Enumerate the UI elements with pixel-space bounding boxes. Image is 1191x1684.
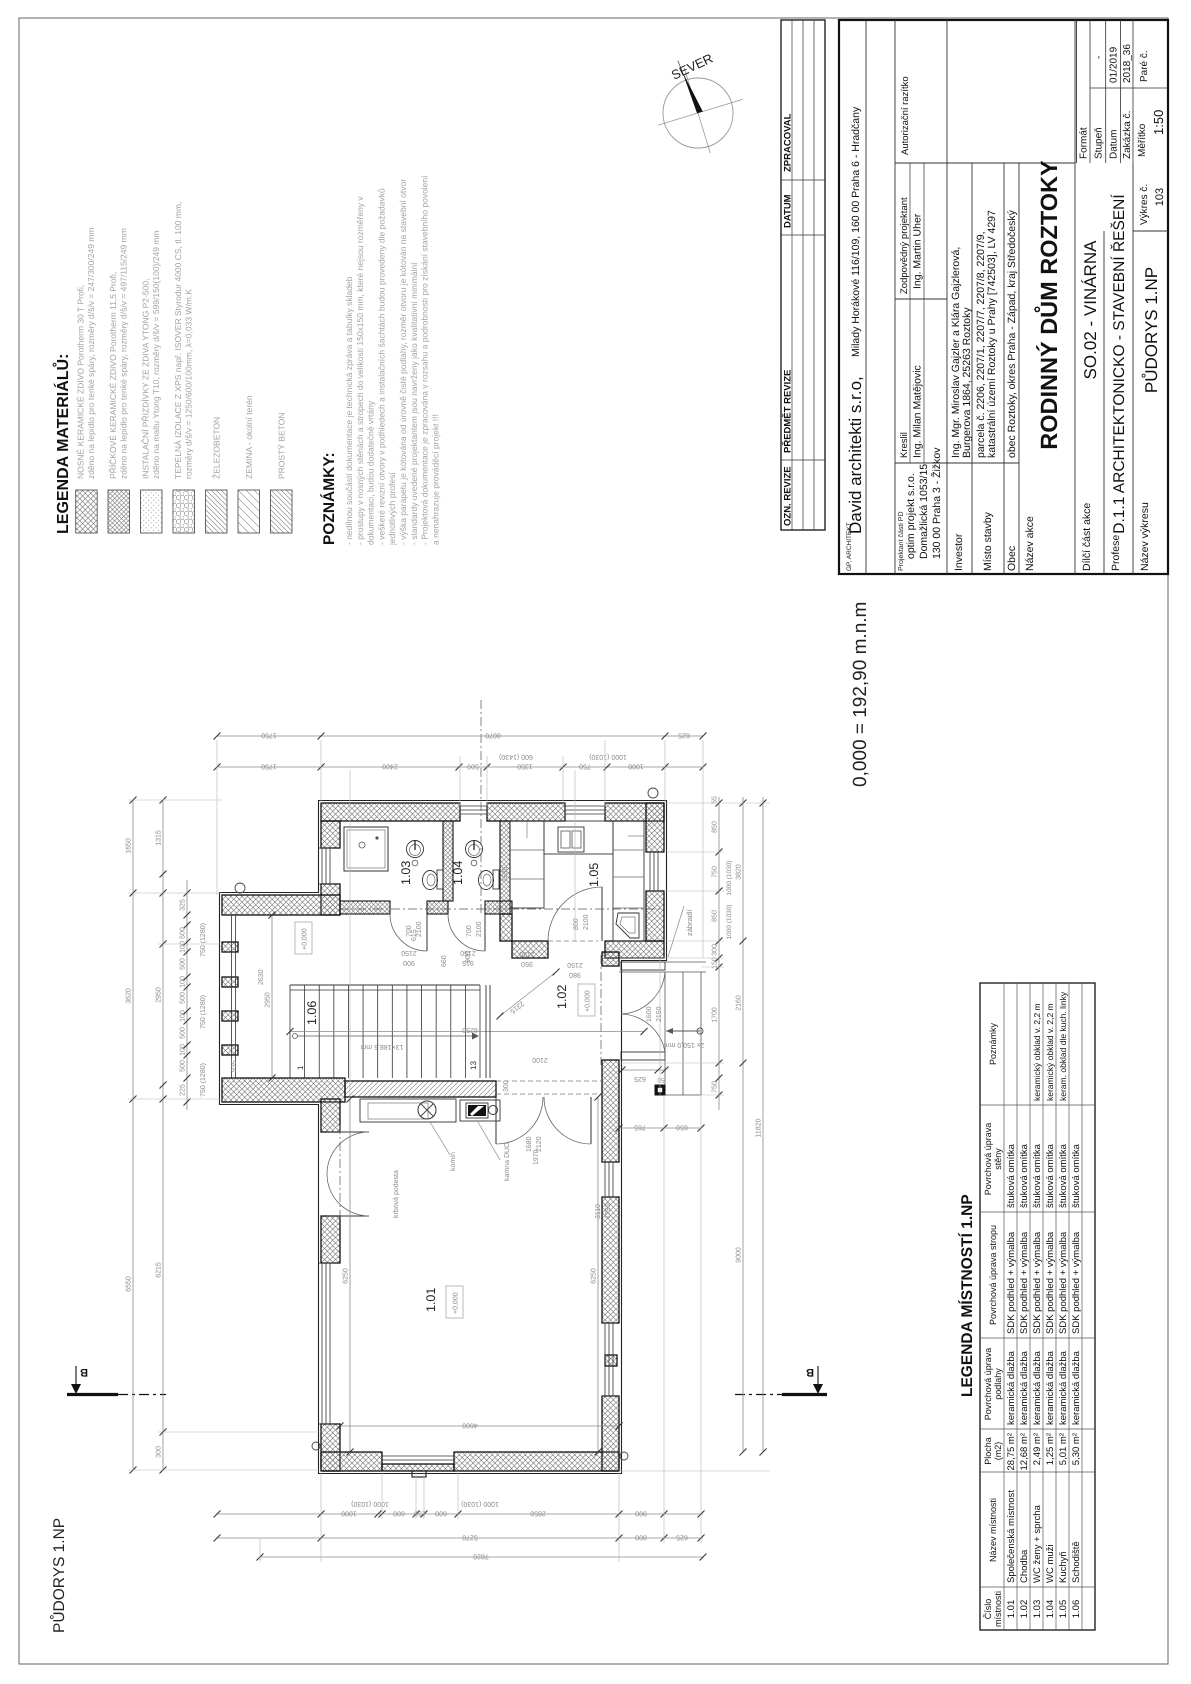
svg-text:28,75 m²: 28,75 m² [1006, 1433, 1017, 1471]
svg-text:Měřítko: Měřítko [1137, 123, 1148, 157]
svg-text:750 (1280): 750 (1280) [199, 923, 207, 957]
svg-text:štuková omítka: štuková omítka [1006, 1143, 1017, 1208]
svg-text:1750: 1750 [605, 1203, 612, 1219]
svg-text:OZN. REVIZE: OZN. REVIZE [783, 466, 794, 526]
svg-text:+0,000: +0,000 [585, 990, 592, 1012]
svg-text:+0,000: +0,000 [453, 1292, 460, 1314]
svg-text:1.02: 1.02 [555, 985, 569, 1009]
svg-text:2630: 2630 [258, 969, 265, 985]
svg-text:300: 300 [712, 944, 719, 956]
svg-text:Číslo: Číslo [983, 1599, 993, 1620]
svg-text:WC ženy + sprcha: WC ženy + sprcha [1032, 1504, 1043, 1583]
svg-text:2120: 2120 [536, 1136, 543, 1152]
svg-text:750: 750 [712, 1081, 719, 1093]
svg-text:Název akce: Název akce [1024, 516, 1036, 571]
svg-text:2018_36: 2018_36 [1122, 44, 1133, 83]
svg-text:5,30 m²: 5,30 m² [1071, 1433, 1082, 1465]
svg-text:ZEMINA - okolní terén: ZEMINA - okolní terén [244, 395, 254, 479]
svg-text:500: 500 [467, 763, 479, 770]
svg-text:2950: 2950 [265, 992, 272, 1008]
svg-text:100: 100 [180, 1044, 187, 1056]
svg-text:5270: 5270 [462, 1534, 478, 1541]
svg-text:Místo stavby: Místo stavby [982, 511, 994, 571]
svg-text:Investor: Investor [953, 533, 965, 571]
svg-text:Formát: Formát [1079, 127, 1090, 159]
svg-text:zděno na maltu Ytong T10, rozm: zděno na maltu Ytong T10, rozměry d/š/v … [151, 231, 161, 479]
svg-text:- nedílnou součástí dokumentac: - nedílnou součástí dokumentace je techn… [344, 276, 354, 545]
svg-text:POZNÁMKY:: POZNÁMKY: [320, 452, 338, 545]
svg-text:štuková omítka: štuková omítka [1019, 1143, 1030, 1208]
svg-text:keram. obklad dle kuch. linky: keram. obklad dle kuch. linky [1058, 991, 1068, 1101]
svg-text:-: - [1094, 56, 1105, 59]
svg-text:SDK podhled + výmalba: SDK podhled + výmalba [1071, 1231, 1082, 1334]
svg-text:keramická dlažba: keramická dlažba [1006, 1350, 1017, 1425]
svg-text:980: 980 [569, 971, 581, 978]
svg-text:Domažlická 1053/15: Domažlická 1053/15 [918, 464, 930, 559]
svg-text:Ing. Martin Uher: Ing. Martin Uher [912, 213, 924, 289]
svg-text:500: 500 [180, 927, 187, 939]
svg-text:1650: 1650 [126, 838, 133, 854]
svg-text:2100: 2100 [532, 1056, 548, 1063]
svg-text:Název místnosti: Název místnosti [988, 1498, 998, 1562]
svg-text:ZPRACOVAL: ZPRACOVAL [783, 113, 794, 172]
svg-text:TEPELNÁ IZOLACE Z XPS např. IS: TEPELNÁ IZOLACE Z XPS např. ISOVER Styro… [173, 202, 183, 479]
svg-text:kamna DUO: kamna DUO [503, 1142, 511, 1181]
svg-text:1000 (1030): 1000 (1030) [461, 1500, 499, 1508]
svg-text:Povrchová úprava stropu: Povrchová úprava stropu [988, 1225, 998, 1325]
svg-text:800: 800 [573, 918, 580, 930]
svg-text:zábradlí: zábradlí [685, 908, 694, 936]
svg-text:2850: 2850 [530, 1510, 546, 1517]
svg-text:PŮDORYS 1.NP: PŮDORYS 1.NP [1141, 267, 1161, 393]
svg-text:Projektant části PD: Projektant části PD [897, 511, 905, 571]
svg-text:1350: 1350 [517, 763, 533, 770]
svg-text:915: 915 [462, 959, 474, 966]
svg-text:SDK podhled + výmalba: SDK podhled + výmalba [1019, 1231, 1030, 1334]
svg-text:NOSNÉ KERAMICKÉ ZDIVO Porother: NOSNÉ KERAMICKÉ ZDIVO Porotherm 30 T Pro… [76, 285, 86, 479]
svg-text:SDK podhled + výmalba: SDK podhled + výmalba [1045, 1231, 1056, 1334]
svg-text:podlahy: podlahy [993, 1368, 1003, 1400]
svg-text:950: 950 [521, 960, 533, 967]
svg-text:1315: 1315 [156, 830, 163, 846]
svg-text:Schodiště: Schodiště [1071, 1541, 1082, 1583]
svg-text:13×188,5 mm: 13×188,5 mm [360, 1043, 403, 1050]
svg-text:5,01 m²: 5,01 m² [1058, 1433, 1069, 1465]
svg-text:- prostupy v nosných stěnách a: - prostupy v nosných stěnách a stropech … [355, 196, 365, 545]
svg-text:1600: 1600 [646, 1006, 653, 1022]
svg-text:Paré č.: Paré č. [1139, 50, 1150, 82]
svg-text:PŮDORYS 1.NP: PŮDORYS 1.NP [49, 1518, 68, 1633]
svg-text:625: 625 [676, 1534, 688, 1541]
svg-text:1.01: 1.01 [424, 1288, 438, 1312]
svg-text:optim projekt s.r.o.: optim projekt s.r.o. [905, 473, 917, 559]
svg-text:100: 100 [180, 976, 187, 988]
svg-text:místnosti: místnosti [993, 1591, 1003, 1627]
svg-text:katastrální území Roztoky u Pr: katastrální území Roztoky u Prahy [74250… [986, 210, 998, 458]
svg-text:130 00 Praha 3 - Žižkov: 130 00 Praha 3 - Žižkov [930, 447, 943, 559]
svg-text:PŘÍČKOVÉ KERAMICKÉ ZDIVO Porot: PŘÍČKOVÉ KERAMICKÉ ZDIVO Porotherm 11,5 … [108, 272, 118, 479]
svg-text:Dílčí část akce: Dílčí část akce [1081, 503, 1093, 571]
svg-text:1000 (1030): 1000 (1030) [726, 904, 733, 939]
svg-text:2160: 2160 [736, 995, 743, 1011]
svg-text:- Projektová dokumentace je zp: - Projektová dokumentace je zpracována v… [420, 175, 430, 545]
svg-text:11820: 11820 [756, 1118, 763, 1137]
svg-text:3110: 3110 [595, 1204, 602, 1219]
svg-text:600 (1430): 600 (1430) [499, 753, 533, 761]
svg-text:- veškeré revizní otvory v pod: - veškeré revizní otvory v podhledech a … [376, 188, 386, 545]
svg-text:ŽELEZOBETON: ŽELEZOBETON [212, 417, 222, 479]
svg-text:2x 150,0 mm: 2x 150,0 mm [664, 1041, 705, 1048]
svg-text:1.03: 1.03 [1032, 1600, 1043, 1619]
svg-text:Kreslil: Kreslil [899, 432, 910, 458]
svg-text:6250: 6250 [462, 1026, 478, 1033]
svg-text:225: 225 [180, 1084, 187, 1096]
svg-text:obec Roztoky, okres Praha - Zá: obec Roztoky, okres Praha - Západ, kraj … [1006, 209, 1018, 458]
svg-text:1680: 1680 [526, 1136, 533, 1152]
svg-text:700: 700 [466, 925, 473, 937]
svg-text:1535: 1535 [502, 866, 509, 882]
svg-text:2150: 2150 [401, 949, 417, 956]
svg-text:Poznámky: Poznámky [988, 1022, 998, 1065]
svg-text:2150: 2150 [519, 950, 535, 957]
svg-text:1.04: 1.04 [1045, 1600, 1056, 1619]
svg-text:600: 600 [435, 1510, 447, 1517]
svg-text:Stupeň: Stupeň [1094, 127, 1105, 159]
svg-text:900: 900 [635, 1510, 647, 1517]
svg-text:1:50: 1:50 [1151, 110, 1166, 135]
svg-text:300: 300 [156, 1446, 163, 1458]
svg-text:600: 600 [393, 1510, 405, 1517]
svg-text:LEGENDA MATERIÁLŮ:: LEGENDA MATERIÁLŮ: [52, 354, 72, 534]
svg-text:12,68 m²: 12,68 m² [1019, 1433, 1030, 1471]
svg-text:+0,000: +0,000 [302, 928, 309, 950]
svg-text:800: 800 [635, 1534, 647, 1541]
svg-text:Výkres č.: Výkres č. [1139, 184, 1150, 225]
svg-text:500: 500 [180, 1060, 187, 1072]
svg-text:4600: 4600 [462, 1422, 478, 1429]
svg-text:2100: 2100 [416, 921, 423, 937]
svg-text:9000: 9000 [736, 1247, 743, 1263]
svg-text:(m2): (m2) [993, 1442, 1003, 1461]
svg-text:6250: 6250 [591, 1268, 598, 1284]
svg-text:1.06: 1.06 [1071, 1600, 1082, 1619]
svg-text:INSTALAČNÍ PŘIZDÍVKY ZE ZDIVA: INSTALAČNÍ PŘIZDÍVKY ZE ZDIVA YTONG P2-5… [141, 279, 151, 479]
svg-text:PŘEDMĚT REVIZE: PŘEDMĚT REVIZE [782, 370, 794, 453]
svg-text:6550: 6550 [126, 1276, 133, 1292]
svg-text:PROSTÝ BETON: PROSTÝ BETON [277, 413, 287, 479]
svg-text:0,000 = 192,90 m.n.m: 0,000 = 192,90 m.n.m [850, 602, 871, 787]
svg-text:Chodba: Chodba [1019, 1549, 1030, 1583]
svg-text:Milady Horákové 116/109, 160 0: Milady Horákové 116/109, 160 00 Praha 6 … [850, 106, 862, 357]
svg-text:keramický obklad v. 2,2 m: keramický obklad v. 2,2 m [1045, 1003, 1055, 1101]
svg-text:2150: 2150 [567, 961, 583, 968]
svg-text:500: 500 [180, 992, 187, 1004]
svg-text:2150: 2150 [460, 949, 476, 956]
svg-text:keramická dlažba: keramická dlažba [1032, 1350, 1043, 1425]
svg-text:2400: 2400 [382, 763, 398, 770]
svg-text:B: B [806, 1366, 814, 1378]
svg-text:500: 500 [180, 958, 187, 970]
svg-text:3620: 3620 [126, 988, 133, 1004]
svg-text:103: 103 [1154, 188, 1166, 206]
svg-text:750: 750 [579, 763, 591, 770]
svg-text:1000: 1000 [628, 763, 644, 770]
svg-text:900: 900 [403, 959, 415, 966]
svg-text:dokumentaci, budou dodatečně v: dokumentaci, budou dodatečně vrtány [366, 400, 376, 545]
svg-text:David architekti s.r.o,: David architekti s.r.o, [846, 376, 865, 534]
svg-text:Burgerova 1864, 25263 Roztoky: Burgerova 1864, 25263 Roztoky [961, 307, 973, 458]
svg-text:2950: 2950 [156, 987, 163, 1003]
svg-text:1000 (1030): 1000 (1030) [726, 860, 733, 895]
svg-text:keramická dlažba: keramická dlažba [1045, 1350, 1056, 1425]
svg-text:1000: 1000 [341, 1510, 357, 1517]
svg-text:1000 (1030): 1000 (1030) [589, 753, 627, 761]
svg-text:1750: 1750 [261, 732, 277, 739]
svg-text:Zakázka č.: Zakázka č. [1122, 111, 1133, 159]
svg-text:750: 750 [712, 866, 719, 878]
svg-text:100: 100 [180, 1010, 187, 1022]
svg-text:2150: 2150 [656, 1006, 663, 1022]
svg-text:6250: 6250 [343, 1268, 350, 1284]
svg-text:Plocha: Plocha [983, 1437, 993, 1465]
svg-text:625: 625 [678, 732, 690, 739]
svg-text:keramický obklad v. 2,2 m: keramický obklad v. 2,2 m [1032, 1003, 1042, 1101]
svg-text:a nenahrazuje prováděcí projek: a nenahrazuje prováděcí projekt !!! [430, 414, 440, 545]
svg-text:zděno na lepidlo pro tenké spá: zděno na lepidlo pro tenké spáry, rozměr… [119, 228, 129, 479]
svg-text:LEGENDA MÍSTNOSTÍ 1.NP: LEGENDA MÍSTNOSTÍ 1.NP [958, 1194, 976, 1397]
svg-text:keramická dlažba: keramická dlažba [1071, 1350, 1082, 1425]
svg-text:325: 325 [180, 899, 187, 911]
svg-text:300: 300 [503, 1080, 510, 1092]
svg-text:Povrchová úprava: Povrchová úprava [983, 1123, 993, 1196]
svg-text:Profese: Profese [1110, 535, 1122, 571]
svg-text:1700: 1700 [712, 1007, 719, 1023]
svg-text:D.1.1 ARCHITEKTONICKO - STAVEB: D.1.1 ARCHITEKTONICKO - STAVEBNÍ ŘEŠENÍ [1110, 194, 1128, 534]
svg-text:1.01: 1.01 [1006, 1600, 1017, 1619]
svg-text:6215: 6215 [156, 1262, 163, 1278]
svg-text:keramická dlažba: keramická dlažba [1019, 1350, 1030, 1425]
svg-text:jednotlivých profesí: jednotlivých profesí [387, 472, 397, 546]
svg-text:rozměry d/š/v = 1250/600/100mm: rozměry d/š/v = 1250/600/100mm, λ=0,033 … [184, 289, 194, 479]
svg-text:1.06: 1.06 [305, 1001, 319, 1025]
svg-text:keramická dlažba: keramická dlažba [1058, 1350, 1069, 1425]
svg-text:01/2019: 01/2019 [1109, 46, 1120, 83]
svg-text:Obec: Obec [1006, 546, 1018, 571]
svg-text:- výška parapetu je kótována o: - výška parapetu je kótována od úrovně č… [398, 179, 408, 545]
svg-text:RODINNÝ DŮM ROZTOKY: RODINNÝ DŮM ROZTOKY [1034, 160, 1062, 450]
svg-text:zděno na lepidlo pro tenké spá: zděno na lepidlo pro tenké spáry, rozměr… [86, 228, 96, 479]
svg-text:SO.02 - VINÁRNA: SO.02 - VINÁRNA [1081, 240, 1100, 380]
svg-text:krbová podesta: krbová podesta [392, 1170, 400, 1218]
svg-text:1750: 1750 [261, 763, 277, 770]
svg-text:625: 625 [634, 1075, 646, 1082]
svg-text:Autorizační razítko: Autorizační razítko [900, 76, 911, 155]
svg-text:765: 765 [634, 1124, 646, 1131]
svg-text:500: 500 [180, 1027, 187, 1039]
svg-text:SDK podhled + výmalba: SDK podhled + výmalba [1032, 1231, 1043, 1334]
svg-text:B: B [80, 1366, 88, 1378]
svg-text:2,49 m²: 2,49 m² [1032, 1433, 1043, 1465]
svg-text:štuková omítka: štuková omítka [1071, 1143, 1082, 1208]
svg-text:2100: 2100 [583, 914, 590, 930]
svg-text:850: 850 [712, 910, 719, 922]
svg-text:1: 1 [296, 1065, 305, 1070]
svg-text:650: 650 [676, 1124, 688, 1131]
svg-text:3820: 3820 [736, 864, 743, 880]
svg-text:stěny: stěny [993, 1148, 1003, 1170]
svg-text:100: 100 [180, 941, 187, 953]
svg-text:Zodpovědný projektant: Zodpovědný projektant [899, 197, 910, 294]
svg-text:7820: 7820 [473, 1553, 489, 1560]
svg-text:DATUM: DATUM [783, 194, 794, 228]
svg-text:50: 50 [657, 1076, 665, 1083]
svg-text:štuková omítka: štuková omítka [1045, 1143, 1056, 1208]
svg-text:1.04: 1.04 [451, 861, 465, 885]
svg-text:Povrchová úprava: Povrchová úprava [983, 1348, 993, 1421]
svg-text:štuková omítka: štuková omítka [1032, 1143, 1043, 1208]
svg-text:750 (1280): 750 (1280) [199, 1063, 207, 1097]
svg-text:1,25 m²: 1,25 m² [1045, 1433, 1056, 1465]
svg-text:SDK podhled + výmalba: SDK podhled + výmalba [1058, 1231, 1069, 1334]
svg-text:660: 660 [441, 955, 448, 967]
svg-text:750 (1280): 750 (1280) [199, 995, 207, 1029]
svg-text:Ing. Milan Matějovic: Ing. Milan Matějovic [912, 365, 924, 458]
svg-text:Společenská místnost: Společenská místnost [1006, 1490, 1017, 1583]
svg-text:1.05: 1.05 [587, 863, 601, 887]
svg-text:- standardy uvedené projektant: - standardy uvedené projektantem jsou na… [409, 262, 419, 545]
svg-text:8070: 8070 [485, 732, 501, 739]
svg-text:Kuchyň: Kuchyň [1058, 1551, 1069, 1583]
svg-text:Datum: Datum [1109, 130, 1120, 159]
svg-text:13: 13 [469, 1061, 478, 1070]
svg-text:štuková omítka: štuková omítka [1058, 1143, 1069, 1208]
svg-text:SDK podhled + výmalba: SDK podhled + výmalba [1006, 1231, 1017, 1334]
svg-text:1.05: 1.05 [1058, 1600, 1069, 1619]
svg-text:1000 (1030): 1000 (1030) [351, 1500, 389, 1508]
svg-text:935: 935 [231, 1060, 238, 1072]
svg-text:850: 850 [712, 821, 719, 833]
svg-text:1.03: 1.03 [399, 861, 413, 885]
svg-text:Název výkresu: Název výkresu [1139, 502, 1151, 571]
svg-text:2100: 2100 [476, 921, 483, 937]
svg-text:700: 700 [406, 925, 413, 937]
svg-text:WC muži: WC muži [1045, 1544, 1056, 1583]
svg-text:1.02: 1.02 [1019, 1600, 1030, 1619]
